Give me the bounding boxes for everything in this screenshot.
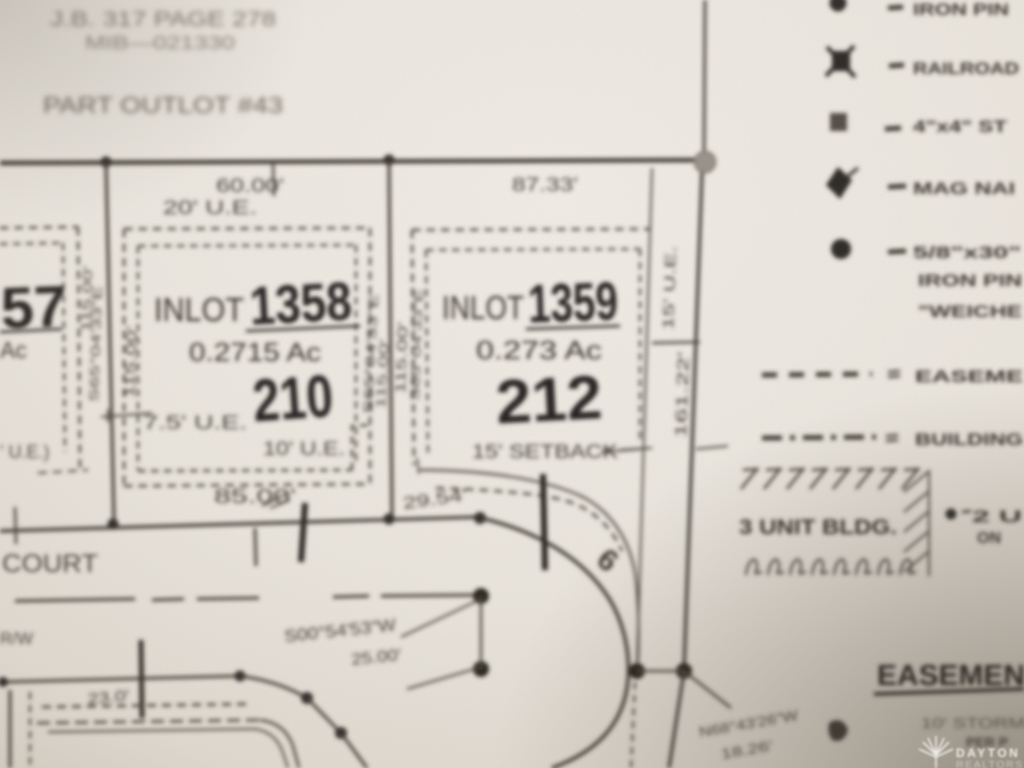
svg-text:REALTORS: REALTORS	[956, 759, 1024, 768]
svg-text:DAYTON: DAYTON	[956, 746, 1020, 760]
